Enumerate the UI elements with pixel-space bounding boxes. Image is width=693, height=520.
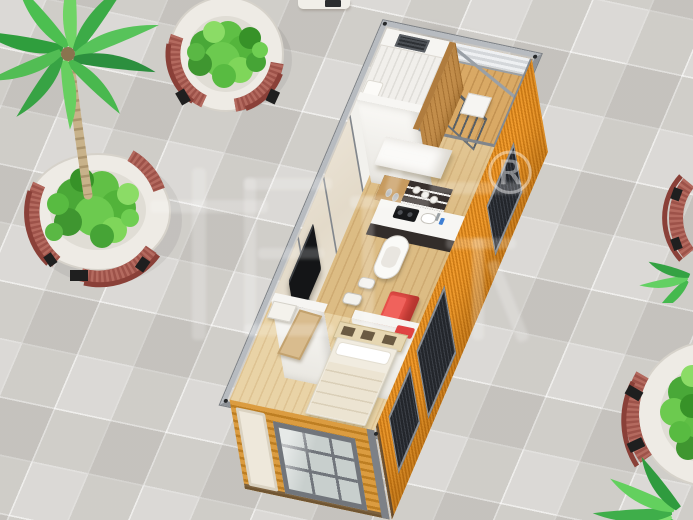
render-scene: 柜族 ® xyxy=(0,0,693,520)
facade-window xyxy=(273,421,368,511)
table-item xyxy=(325,0,341,7)
side-window xyxy=(389,366,420,474)
table-edge-partial xyxy=(298,0,350,9)
